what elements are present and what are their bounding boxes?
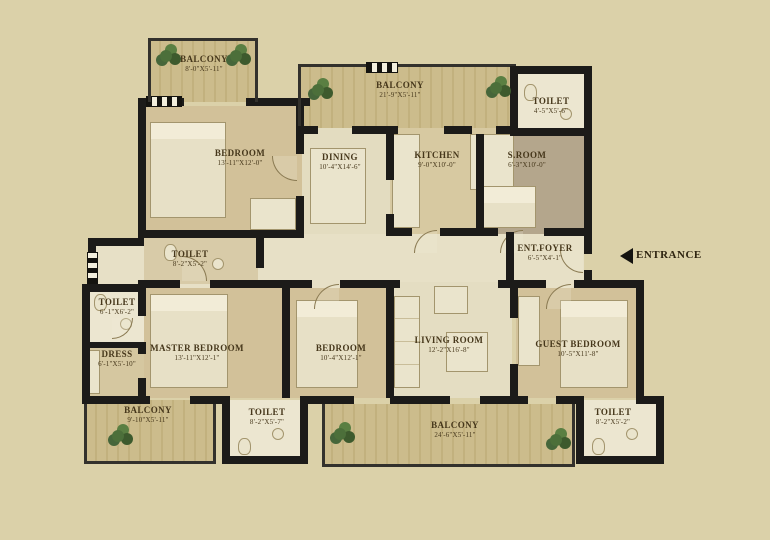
window <box>87 252 98 284</box>
wall <box>584 270 592 288</box>
wall <box>144 230 304 238</box>
wall <box>388 280 400 288</box>
dining-table <box>310 148 366 224</box>
wall <box>510 364 518 398</box>
wall <box>256 238 264 268</box>
wall <box>510 284 518 318</box>
toilet-fixture <box>592 438 605 455</box>
potted-plant-icon <box>490 82 502 94</box>
floor-plan: BALCONY 8'-0"X5'-11" BEDROOM 13'-11"X12'… <box>0 0 770 540</box>
wall <box>322 396 354 404</box>
kitchen-counter <box>392 134 420 228</box>
wall <box>476 228 498 236</box>
balcony-parapet <box>255 38 258 102</box>
washbasin <box>272 428 284 440</box>
potted-plant-icon <box>160 50 172 62</box>
wall <box>284 280 312 288</box>
wall <box>282 288 290 398</box>
balcony-parapet <box>148 38 151 102</box>
balcony-parapet <box>322 404 325 466</box>
entrance-label: ENTRANCE <box>636 249 702 261</box>
sofa <box>394 296 420 388</box>
balcony-parapet <box>298 64 516 67</box>
balcony-bottom-left-floor <box>86 400 214 462</box>
wall <box>636 284 644 404</box>
wall <box>222 456 308 464</box>
wall <box>656 396 664 464</box>
toilet-fixture <box>164 244 177 261</box>
entrance-arrow-icon <box>620 248 633 264</box>
potted-plant-icon <box>312 84 324 96</box>
wall <box>210 280 284 288</box>
window <box>146 96 182 107</box>
washbasin <box>560 108 572 120</box>
wall <box>386 228 412 236</box>
wardrobe <box>518 296 540 366</box>
wall <box>510 66 518 136</box>
balcony-parapet <box>84 461 216 464</box>
balcony-parapet <box>572 404 575 466</box>
wall <box>514 280 546 288</box>
wall <box>138 288 146 316</box>
balcony-parapet <box>148 38 258 41</box>
potted-plant-icon <box>230 50 242 62</box>
wall <box>440 228 478 236</box>
wall <box>510 128 590 136</box>
window <box>366 62 398 73</box>
potted-plant-icon <box>112 430 124 442</box>
wall <box>584 66 592 238</box>
bed <box>560 300 628 388</box>
wall <box>222 396 230 462</box>
wall <box>88 238 144 246</box>
balcony-parapet <box>322 464 575 467</box>
wall <box>296 126 318 134</box>
wall <box>510 66 592 74</box>
bed <box>296 300 358 388</box>
wall <box>82 284 144 292</box>
balcony-bottom-floor <box>322 404 574 466</box>
wall <box>390 396 450 404</box>
washbasin <box>626 428 638 440</box>
balcony-parapet <box>84 404 87 464</box>
wall <box>476 134 484 234</box>
balcony-parapet <box>213 404 216 464</box>
wall <box>386 128 394 180</box>
wall <box>138 280 180 288</box>
wall <box>576 396 584 462</box>
wall <box>584 238 592 254</box>
wall <box>82 396 150 404</box>
bed <box>482 186 536 228</box>
wall <box>576 456 664 464</box>
wall <box>636 396 660 404</box>
coffee-table <box>446 332 488 372</box>
bed <box>150 122 226 218</box>
potted-plant-icon <box>334 428 346 440</box>
toilet-fixture <box>524 84 537 101</box>
wall <box>386 288 394 398</box>
wall <box>340 280 388 288</box>
toilet-top-right-floor <box>514 74 584 134</box>
potted-plant-icon <box>550 434 562 446</box>
wall <box>480 396 528 404</box>
wall <box>444 126 472 134</box>
washbasin <box>212 258 224 270</box>
balcony-parapet <box>298 64 301 128</box>
wall <box>138 342 146 354</box>
wall <box>506 232 514 282</box>
wall <box>138 98 146 238</box>
balcony-top-floor <box>300 66 514 128</box>
toilet-fixture <box>94 294 107 311</box>
wardrobe <box>250 198 296 230</box>
armchair <box>434 286 468 314</box>
wall <box>544 228 588 236</box>
toilet-fixture <box>238 438 251 455</box>
bed <box>150 294 228 388</box>
wall <box>300 396 308 462</box>
wall <box>88 342 144 348</box>
